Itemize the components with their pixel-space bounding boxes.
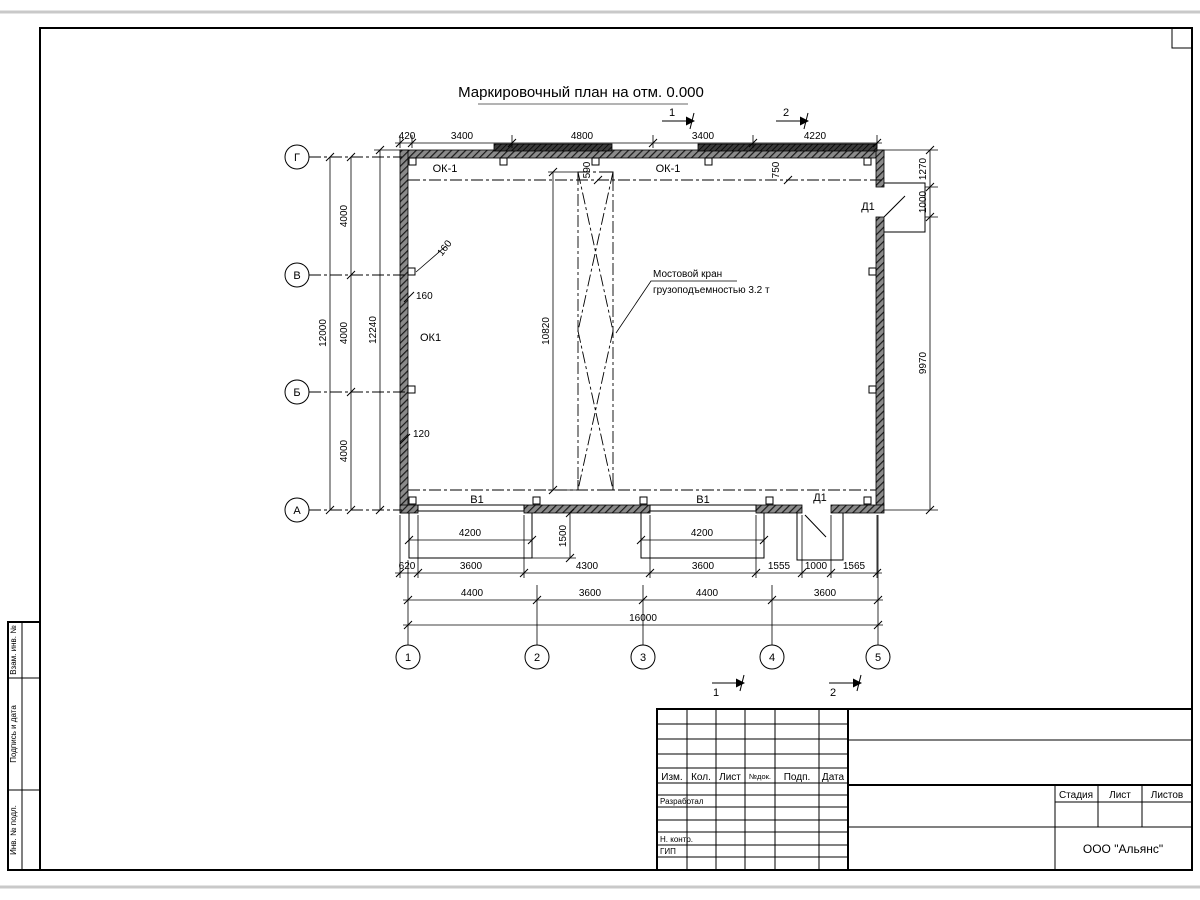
margin-label-inv: Инв. № подл. [9, 805, 18, 855]
tb-stage: Стадия [1059, 790, 1093, 801]
tb-col-kol: Кол. [691, 772, 711, 783]
margin-label-podpis: Подпись и дата [9, 705, 18, 763]
mark-ok1-top-right: ОК-1 [656, 163, 681, 175]
crane-note-line1: Мостовой кран [653, 269, 722, 280]
dim-left-4000c: 4000 [339, 439, 350, 462]
dim-b3-16000: 16000 [629, 613, 657, 624]
drawing-sheet: Маркировочный план на отм. 0.000 [0, 0, 1200, 900]
dim-b1-4300: 4300 [576, 561, 599, 572]
dim-b2-4400b: 4400 [696, 588, 719, 599]
tb-sheet: Лист [1109, 790, 1131, 801]
dim-b1-1000: 1000 [805, 561, 828, 572]
svg-text:2: 2 [783, 107, 789, 119]
mark-gate-1: В1 [470, 494, 483, 506]
walls [400, 150, 884, 513]
drawing-title: Маркировочный план на отм. 0.000 [458, 84, 704, 104]
dim-top-420: 420 [399, 131, 416, 142]
tb-role-gip: ГИП [660, 847, 676, 856]
page-title: Маркировочный план на отм. 0.000 [458, 84, 704, 101]
dim-top-4800: 4800 [571, 131, 594, 142]
plan-drawing: Маркировочный план на отм. 0.000 [0, 0, 1200, 900]
axis-row-g: Г [294, 152, 300, 164]
dim-b1-1555: 1555 [768, 561, 791, 572]
dim-top-3400a: 3400 [451, 131, 474, 142]
dim-b1-3600b: 3600 [692, 561, 715, 572]
dim-right-1270: 1270 [918, 157, 929, 180]
dim-b1-1565: 1565 [843, 561, 866, 572]
interior-axes [408, 180, 884, 490]
axis-col-3: 3 [640, 652, 646, 664]
axis-row-a: А [293, 505, 301, 517]
mark-gate-2: В1 [696, 494, 709, 506]
pilasters [408, 158, 876, 504]
section-marker-bottom-1: 1 [712, 675, 745, 699]
dim-top-3400b: 3400 [692, 131, 715, 142]
mark-door-bottom: Д1 [813, 492, 827, 504]
dim-crane: 10820 590 750 [541, 161, 792, 494]
element-marks: ОК-1 ОК-1 ОК1 В1 В1 Д1 Д1 [420, 163, 875, 506]
axis-col-2: 2 [534, 652, 540, 664]
svg-text:1: 1 [713, 687, 719, 699]
dim-col-right: 1270 1000 9970 [884, 146, 938, 514]
mark-ok1-top-left: ОК-1 [433, 163, 458, 175]
dim-right-9970: 9970 [918, 351, 929, 374]
tb-col-data: Дата [822, 772, 845, 783]
dim-left-4000b: 4000 [339, 321, 350, 344]
dim-left-4000a: 4000 [339, 204, 350, 227]
crane-symbol [578, 172, 613, 490]
door-leaf-right [884, 196, 905, 217]
axis-col-5: 5 [875, 652, 881, 664]
axis-col-1: 1 [405, 652, 411, 664]
tb-sheets: Листов [1151, 790, 1184, 801]
dim-left-12240: 12240 [368, 316, 379, 344]
leader-160a: 160 [436, 238, 455, 258]
window-strip-2 [698, 144, 877, 151]
dim-left-12000: 12000 [318, 319, 329, 347]
dim-right-1000: 1000 [918, 190, 929, 213]
tb-company: ООО "Альянс" [1083, 842, 1163, 856]
dim-b2-4400a: 4400 [461, 588, 484, 599]
mark-door-right: Д1 [861, 201, 875, 213]
svg-text:1: 1 [669, 107, 675, 119]
dim-b1-620: 620 [399, 561, 416, 572]
dim-crane-10820: 10820 [541, 317, 552, 345]
svg-text:2: 2 [830, 687, 836, 699]
dim-crane-750: 750 [771, 161, 782, 178]
mark-ok1-left: ОК1 [420, 332, 441, 344]
section-marker-top-1: 1 [662, 107, 695, 129]
tb-col-podp: Подп. [784, 772, 811, 783]
leader-120: 120 [413, 429, 430, 440]
dim-col-left: 12000 4000 4000 4000 12240 [318, 146, 402, 514]
door-leaf-bottom [805, 515, 826, 537]
dim-b2-3600b: 3600 [814, 588, 837, 599]
leader-160b: 160 [416, 291, 433, 302]
crane-note: Мостовой кран грузоподъемностью 3.2 т [616, 269, 770, 333]
section-marker-bottom-2: 2 [829, 675, 862, 699]
crane-note-line2: грузоподъемностью 3.2 т [653, 285, 770, 296]
dim-crane-590: 590 [582, 161, 593, 178]
dim-aprons: 4200 4200 1500 [405, 509, 768, 562]
dim-apron-4200a: 4200 [459, 528, 482, 539]
axis-col-4: 4 [769, 652, 775, 664]
margin-column: Взам. инв. № Подпись и дата Инв. № подл. [8, 622, 40, 870]
margin-label-vzam: Взам. инв. № [9, 625, 18, 675]
dim-top-4220: 4220 [804, 131, 827, 142]
dim-b2-3600a: 3600 [579, 588, 602, 599]
tb-col-list: Лист [719, 772, 741, 783]
tb-col-ndok: №док. [749, 772, 771, 781]
axis-row-v: В [293, 270, 300, 282]
tb-role-developed: Разработал [660, 797, 704, 806]
tb-col-izm: Изм. [661, 772, 682, 783]
dim-apron-1500: 1500 [558, 524, 569, 547]
door-bottom [797, 513, 843, 560]
top-right-doc-box [1172, 28, 1192, 48]
section-marker-top-2: 2 [776, 107, 809, 129]
dim-b1-3600a: 3600 [460, 561, 483, 572]
section-markers: 1 2 1 2 [662, 107, 862, 699]
axis-row-b: Б [293, 387, 300, 399]
dim-apron-4200b: 4200 [691, 528, 714, 539]
title-block: Изм. Кол. Лист №док. Подп. Дата Разработ… [657, 709, 1192, 870]
tb-role-ncontrol: Н. контр. [660, 835, 693, 844]
